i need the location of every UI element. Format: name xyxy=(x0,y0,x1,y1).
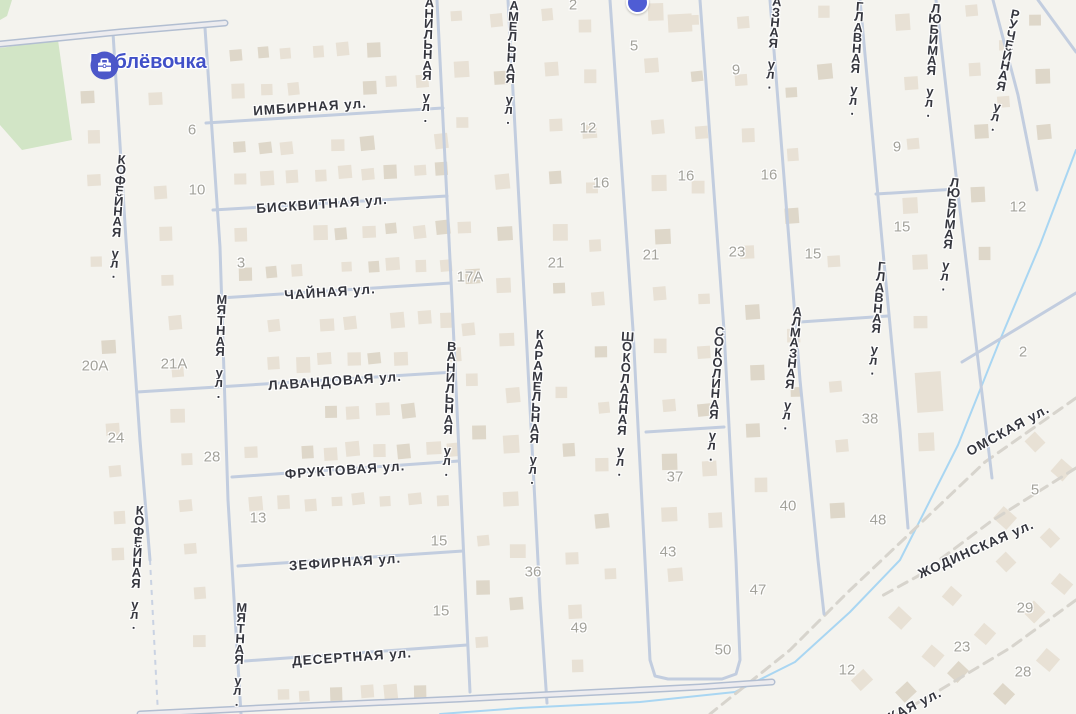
building xyxy=(278,689,290,700)
building xyxy=(653,286,667,301)
house-number: 2 xyxy=(1019,344,1027,361)
building xyxy=(549,171,562,185)
building xyxy=(383,164,397,179)
building xyxy=(667,567,683,582)
building xyxy=(598,402,610,414)
building xyxy=(265,266,277,279)
map-viewport[interactable]: КОФЕЙНАЯ ул.КОФЕЙНАЯ ул.МЯТНАЯ ул.МЯТНАЯ… xyxy=(0,0,1076,714)
building xyxy=(965,4,978,16)
building xyxy=(383,684,398,700)
building xyxy=(490,13,503,27)
building xyxy=(301,445,313,458)
building xyxy=(746,423,760,437)
building xyxy=(194,587,207,600)
building xyxy=(331,139,344,151)
poi-rublyovochka[interactable]: Рублёвочка xyxy=(90,51,207,74)
building xyxy=(375,402,390,415)
building xyxy=(993,683,1015,705)
building xyxy=(579,20,592,33)
building xyxy=(267,356,280,369)
building xyxy=(258,46,270,58)
building xyxy=(594,513,609,529)
building xyxy=(595,458,608,472)
building xyxy=(437,495,449,506)
building xyxy=(572,659,584,672)
building xyxy=(385,257,400,271)
building xyxy=(472,425,486,439)
building xyxy=(181,453,192,465)
building xyxy=(336,41,350,56)
house-number: 13 xyxy=(250,510,267,527)
building xyxy=(830,502,846,518)
building xyxy=(912,254,928,270)
building xyxy=(244,446,258,458)
building xyxy=(604,568,616,579)
building xyxy=(750,365,765,381)
building xyxy=(584,69,596,83)
building xyxy=(651,119,665,134)
house-number: 29 xyxy=(1017,600,1034,617)
building xyxy=(184,543,197,555)
building xyxy=(755,478,768,493)
building xyxy=(413,225,427,239)
house-number: 37 xyxy=(667,469,684,486)
building xyxy=(745,304,760,320)
building xyxy=(304,499,317,512)
house-number: 15 xyxy=(894,219,911,236)
building xyxy=(785,87,797,98)
house-number: 21 xyxy=(548,255,565,272)
building xyxy=(367,42,381,57)
building xyxy=(434,133,449,150)
building xyxy=(287,82,300,96)
house-number: 43 xyxy=(660,544,677,561)
house-number: 12 xyxy=(839,662,856,679)
building xyxy=(661,507,677,522)
building xyxy=(231,83,245,98)
building xyxy=(179,499,193,512)
building xyxy=(313,45,324,57)
building xyxy=(88,130,100,144)
building xyxy=(499,333,514,347)
house-number: 9 xyxy=(893,139,901,156)
building xyxy=(347,352,361,366)
building xyxy=(907,138,920,150)
building xyxy=(325,406,337,418)
building xyxy=(505,387,520,403)
house-number: 23 xyxy=(729,244,746,261)
house-number: 6 xyxy=(188,122,196,139)
building xyxy=(787,148,799,161)
building xyxy=(971,187,986,203)
building xyxy=(591,292,605,307)
building xyxy=(161,275,174,286)
building xyxy=(159,227,172,242)
building xyxy=(565,552,578,565)
building xyxy=(1025,432,1046,453)
building xyxy=(553,224,568,241)
building xyxy=(346,406,360,420)
building xyxy=(589,239,601,252)
building xyxy=(562,443,575,457)
building xyxy=(494,173,510,189)
building xyxy=(341,262,352,272)
house-number: 28 xyxy=(1015,664,1032,681)
house-number: 47 xyxy=(750,582,767,599)
house-number: 17А xyxy=(457,269,484,286)
building xyxy=(475,636,488,648)
building xyxy=(280,141,294,155)
building xyxy=(291,264,303,277)
road xyxy=(113,33,150,560)
building xyxy=(229,49,242,61)
building xyxy=(461,322,475,336)
building xyxy=(698,294,710,305)
building xyxy=(267,319,280,332)
building xyxy=(1036,124,1052,140)
house-number: 15 xyxy=(431,533,448,550)
building xyxy=(299,691,310,702)
building xyxy=(829,381,843,393)
building xyxy=(324,447,338,461)
house-number: 23 xyxy=(954,639,971,656)
building xyxy=(651,175,666,191)
building xyxy=(695,126,708,139)
vegetation-area xyxy=(0,40,72,150)
building xyxy=(426,441,442,455)
house-number: 5 xyxy=(630,38,638,55)
building xyxy=(1036,648,1060,672)
building xyxy=(360,135,376,151)
building xyxy=(408,492,422,505)
house-number: 24 xyxy=(108,430,125,447)
building xyxy=(708,512,723,528)
building xyxy=(555,387,567,398)
building xyxy=(942,586,962,606)
building xyxy=(454,61,470,78)
building xyxy=(338,165,353,179)
building xyxy=(343,316,357,331)
building xyxy=(921,645,944,668)
building xyxy=(414,685,426,697)
building xyxy=(697,346,711,359)
house-number: 38 xyxy=(862,411,879,428)
building xyxy=(331,497,342,507)
house-number: 16 xyxy=(761,167,778,184)
building xyxy=(549,119,562,132)
building xyxy=(918,432,935,451)
building xyxy=(261,84,273,96)
building xyxy=(544,62,559,77)
building xyxy=(113,511,125,525)
building xyxy=(385,223,397,235)
building xyxy=(497,226,513,241)
house-number: 15 xyxy=(805,246,822,263)
house-number: 16 xyxy=(678,168,695,185)
building xyxy=(373,444,386,457)
building xyxy=(108,465,121,478)
building xyxy=(1029,15,1041,26)
house-number: 50 xyxy=(715,642,732,659)
building xyxy=(363,81,377,95)
building xyxy=(394,352,408,366)
building xyxy=(817,63,833,80)
building xyxy=(414,165,427,176)
house-number: 10 xyxy=(189,182,206,199)
building xyxy=(510,544,526,558)
building xyxy=(827,255,840,267)
building xyxy=(456,117,468,128)
house-number: 9 xyxy=(732,62,740,79)
house-number: 28 xyxy=(204,449,221,466)
building xyxy=(260,170,275,185)
building xyxy=(296,357,310,373)
building xyxy=(397,444,411,460)
building xyxy=(170,409,185,423)
building xyxy=(974,623,996,645)
house-number: 49 xyxy=(571,620,588,637)
house-number: 40 xyxy=(780,498,797,515)
building xyxy=(258,141,272,154)
building xyxy=(1035,69,1050,84)
building xyxy=(662,399,676,412)
building xyxy=(477,535,490,547)
building xyxy=(457,221,471,233)
building xyxy=(360,684,374,698)
building xyxy=(496,278,511,294)
house-number: 12 xyxy=(1010,199,1027,216)
building xyxy=(367,352,381,364)
building xyxy=(904,76,918,90)
building xyxy=(553,283,565,294)
house-number: 21А xyxy=(161,356,188,373)
road xyxy=(1038,0,1076,52)
building xyxy=(315,169,327,181)
house-number: 2 xyxy=(569,0,577,14)
building xyxy=(568,604,582,619)
building xyxy=(285,170,298,184)
building xyxy=(385,75,397,87)
building xyxy=(101,340,116,354)
building xyxy=(888,606,912,630)
road-track xyxy=(150,560,158,714)
building xyxy=(654,339,667,353)
building xyxy=(401,403,416,419)
building xyxy=(541,8,553,21)
building xyxy=(362,226,376,238)
building xyxy=(111,548,124,561)
building xyxy=(415,260,426,273)
house-number: 20А xyxy=(82,358,109,375)
building xyxy=(87,174,101,186)
vegetation-area xyxy=(0,0,12,20)
building xyxy=(895,13,911,30)
building xyxy=(691,71,704,82)
building xyxy=(818,6,829,18)
building xyxy=(193,635,206,647)
building xyxy=(317,352,332,365)
house-number: 21 xyxy=(643,247,660,264)
building xyxy=(655,229,671,245)
house-number: 16 xyxy=(593,175,610,192)
building xyxy=(148,92,162,105)
building xyxy=(379,496,390,507)
building xyxy=(277,495,290,509)
building xyxy=(234,173,246,184)
building xyxy=(320,318,335,331)
building xyxy=(390,312,405,329)
building xyxy=(914,316,928,329)
building xyxy=(648,3,664,21)
road xyxy=(876,189,957,194)
building xyxy=(466,373,478,386)
building xyxy=(351,492,365,505)
building xyxy=(737,16,750,29)
building xyxy=(450,11,462,22)
building xyxy=(969,63,981,77)
building xyxy=(330,687,342,701)
building xyxy=(313,225,328,240)
building xyxy=(595,346,607,357)
building xyxy=(154,186,168,200)
building xyxy=(503,491,519,506)
building xyxy=(234,228,247,242)
building xyxy=(742,128,755,142)
building xyxy=(345,441,360,457)
building xyxy=(368,261,379,273)
building xyxy=(902,197,918,214)
building xyxy=(361,168,375,181)
house-number: 3 xyxy=(237,255,245,272)
building xyxy=(80,91,94,104)
building xyxy=(979,247,991,260)
building xyxy=(644,58,659,74)
building xyxy=(168,315,182,330)
building xyxy=(476,580,490,595)
building xyxy=(233,141,246,153)
building xyxy=(91,256,102,266)
building xyxy=(509,597,523,611)
building xyxy=(279,48,291,60)
building xyxy=(418,310,432,324)
house-number: 36 xyxy=(525,564,542,581)
house-number: 48 xyxy=(870,512,887,529)
briefcase-icon xyxy=(90,51,119,80)
house-number: 15 xyxy=(433,603,450,620)
building xyxy=(1040,528,1060,548)
building xyxy=(835,439,849,452)
building xyxy=(996,552,1017,573)
building xyxy=(668,13,693,32)
building xyxy=(915,371,944,413)
building xyxy=(334,227,347,240)
house-number: 5 xyxy=(1031,482,1039,499)
building xyxy=(1051,573,1073,595)
building xyxy=(503,435,520,454)
house-number: 12 xyxy=(580,120,597,137)
